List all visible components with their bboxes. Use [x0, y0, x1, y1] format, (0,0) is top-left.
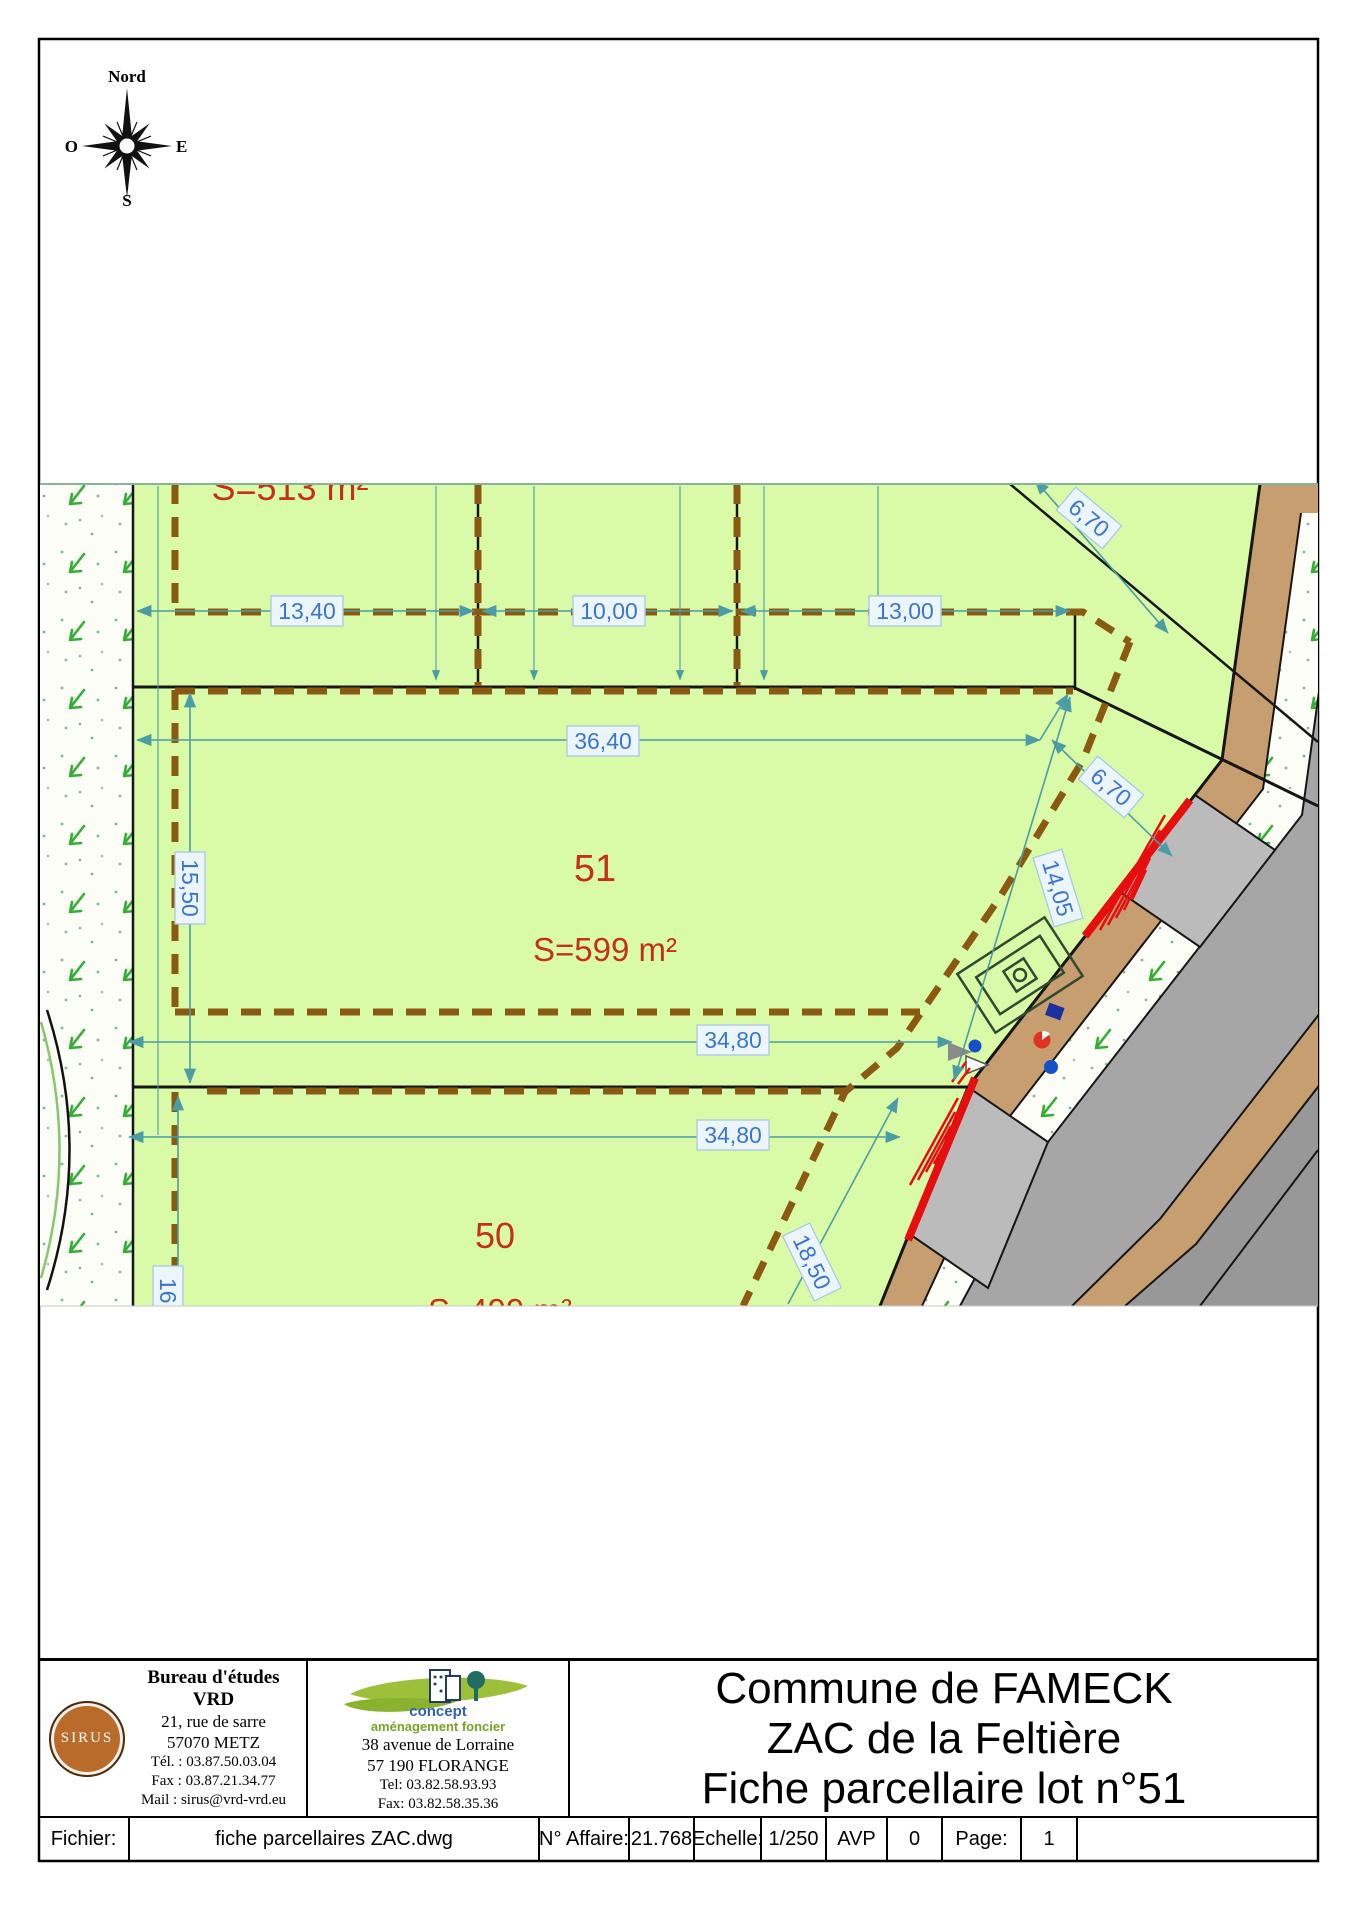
sirus-logo-text: SIRUS: [61, 1730, 114, 1747]
concept-cell: concept aménagement foncier 38 avenue de…: [308, 1661, 570, 1816]
dim-34-80-a: 34,80: [704, 1027, 762, 1053]
lot50-number-label: 50: [475, 1215, 515, 1256]
dim-36-40: 36,40: [574, 728, 632, 754]
utility-marker-dot: [1044, 1060, 1058, 1074]
scale-label: Echelle:: [695, 1818, 762, 1861]
sirus-logo: SIRUS: [49, 1701, 125, 1777]
file-value: fiche parcellaires ZAC.dwg: [130, 1818, 540, 1861]
compass-east-label: E: [176, 137, 187, 156]
title-block-upper-row: SIRUS Bureau d'études VRD 21, rue de sar…: [39, 1661, 1318, 1816]
concept-tel: Tel: 03.82.58.93.93: [362, 1776, 514, 1795]
bureau-info: Bureau d'études VRD 21, rue de sarre 570…: [125, 1667, 302, 1810]
title-block: SIRUS Bureau d'études VRD 21, rue de sar…: [39, 1658, 1318, 1861]
bureau-name: Bureau d'études VRD: [125, 1667, 302, 1711]
title-commune: Commune de FAMECK: [715, 1664, 1172, 1714]
dim-34-80-b: 34,80: [704, 1122, 762, 1148]
bureau-cell: SIRUS Bureau d'études VRD 21, rue de sar…: [39, 1661, 308, 1816]
compass-south-label: S: [122, 191, 131, 210]
parcel-plan-canvas: Nord S E O: [0, 0, 1357, 1920]
compass-north-label: Nord: [108, 67, 146, 86]
lot51-number-label: 51: [574, 848, 616, 890]
concept-address2: 57 190 FLORANGE: [362, 1755, 514, 1776]
scale-value: 1/250: [762, 1818, 827, 1861]
index-value: 0: [888, 1818, 943, 1861]
affaire-value: 21.768: [630, 1818, 695, 1861]
lot50-area-label: S=499 m²: [428, 1292, 572, 1329]
title-zac: ZAC de la Feltière: [767, 1714, 1122, 1764]
concept-fax: Fax: 03.82.58.35.36: [362, 1795, 514, 1814]
title-block-footer-row: Fichier: fiche parcellaires ZAC.dwg N° A…: [39, 1816, 1318, 1861]
concept-buildings-icon: [430, 1670, 460, 1702]
dim-10-00: 10,00: [580, 598, 638, 624]
drawing-title-cell: Commune de FAMECK ZAC de la Feltière Fic…: [570, 1661, 1318, 1816]
page-label: Page:: [943, 1818, 1022, 1861]
dim-13-40: 13,40: [278, 598, 336, 624]
bureau-mail: Mail : sirus@vrd-vrd.eu: [125, 1791, 302, 1810]
lot51-area-label: S=599 m²: [533, 931, 677, 968]
concept-logo: concept aménagement foncier: [338, 1664, 538, 1734]
concept-brand1: concept: [409, 1703, 467, 1720]
plan-drawing: 13,40 10,00 13,00 36,40 15,50 34,80 34,8…: [40, 467, 1357, 1329]
empty-cell: [1078, 1818, 1318, 1861]
title-fiche: Fiche parcellaire lot n°51: [702, 1764, 1187, 1814]
dim-15-50: 15,50: [177, 859, 203, 917]
concept-address1: 38 avenue de Lorraine: [362, 1734, 514, 1755]
affaire-label: N° Affaire:: [540, 1818, 630, 1861]
dim-16-partial: 16,: [155, 1278, 181, 1310]
compass-west-label: O: [65, 137, 78, 156]
bureau-fax: Fax : 03.87.21.34.77: [125, 1772, 302, 1791]
file-label: Fichier:: [39, 1818, 130, 1861]
phase-value: AVP: [827, 1818, 888, 1861]
concept-info: 38 avenue de Lorraine 57 190 FLORANGE Te…: [362, 1734, 514, 1814]
left-verge: [40, 484, 133, 1306]
bureau-address2: 57070 METZ: [125, 1732, 302, 1753]
concept-brand2: aménagement foncier: [371, 1719, 505, 1734]
dim-13-00: 13,00: [876, 598, 934, 624]
bureau-address1: 21, rue de sarre: [125, 1711, 302, 1732]
compass-rose-icon: Nord S E O: [65, 67, 188, 210]
lot-top-area-label: S=513 m²: [211, 467, 368, 508]
bureau-tel: Tél. : 03.87.50.03.04: [125, 1753, 302, 1772]
page-value: 1: [1022, 1818, 1078, 1861]
